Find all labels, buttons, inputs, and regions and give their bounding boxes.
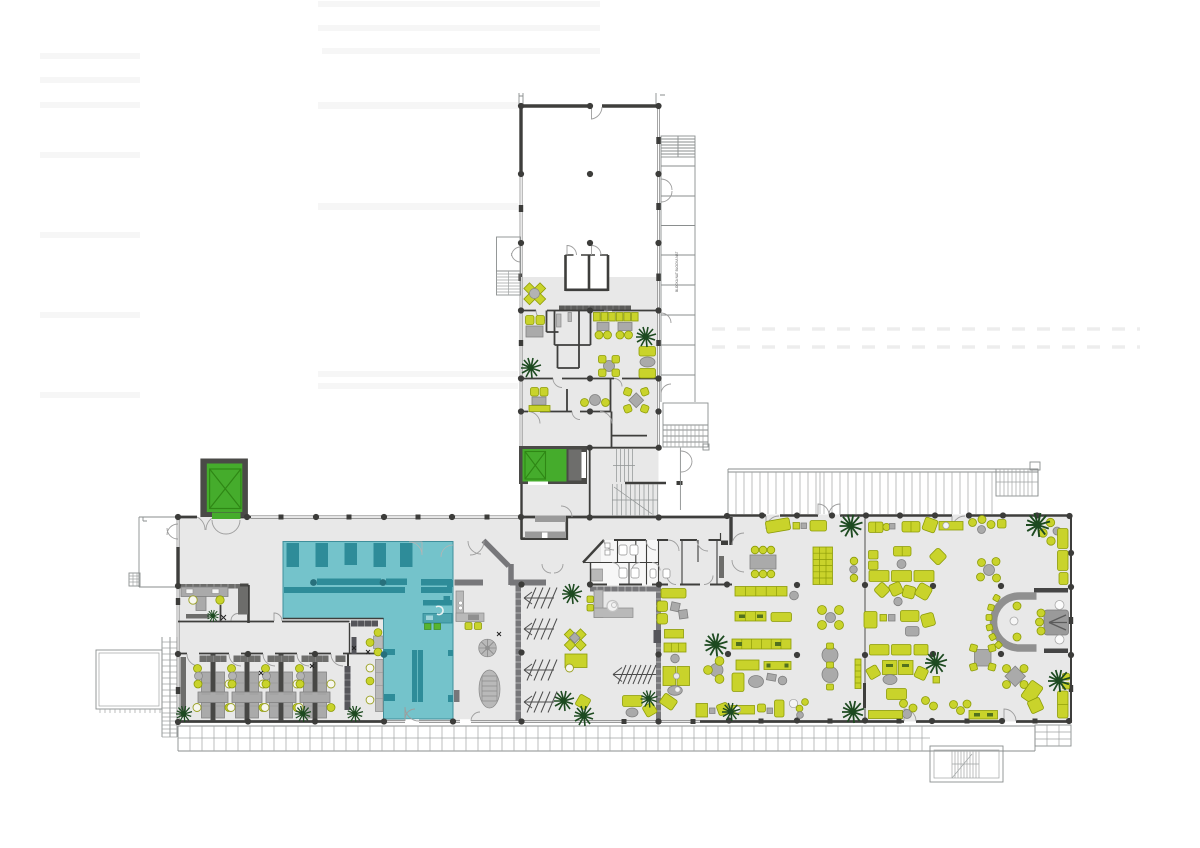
svg-text:BLOCKA NAT BLOCKA NAT: BLOCKA NAT BLOCKA NAT — [675, 252, 679, 292]
